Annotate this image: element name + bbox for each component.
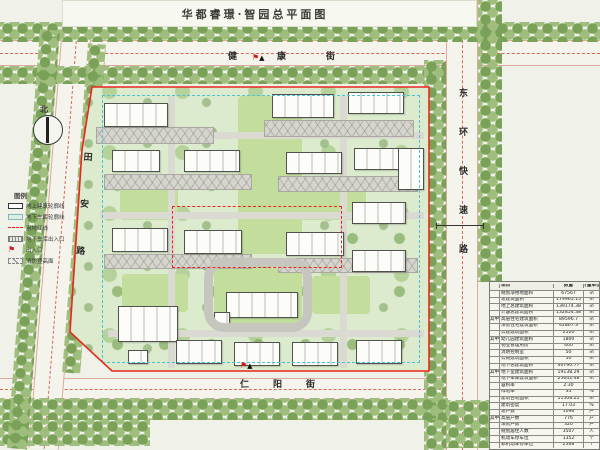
indicator-row: 其中地下室建筑面积19138.29㎡ — [490, 369, 599, 376]
street-label-bottom: 仁阳街 — [240, 377, 339, 390]
indicator-row: 物业管理用房400㎡ — [490, 343, 599, 350]
indicator-row: 洋房住宅建筑面积42867.3㎡ — [490, 323, 599, 330]
street-label-right: 东环快速路 — [456, 88, 469, 283]
street-label-top: 健康街 — [228, 49, 375, 62]
legend: 图例 地上建筑轮廓线地下车库轮廓线用地红线地下车库出入口⚑出入口消防登高面 — [8, 190, 90, 270]
indicator-row: 总建筑面积179965.15㎡ — [490, 297, 599, 304]
garage-outline-icon — [8, 214, 23, 220]
entrance-arrow-icon: ▲ — [247, 362, 252, 370]
header-cell: 项目 — [499, 284, 553, 289]
indicator-table-header: 项目数量计量单位 — [490, 282, 599, 290]
header-cell: 计量单位 — [583, 284, 599, 289]
header-cell: 数量 — [553, 284, 583, 289]
legend-item-label: 地下车库轮廓线 — [26, 213, 65, 221]
drawing-title: 华都睿璟·智园总平面图 — [150, 6, 360, 22]
indicator-row: 公建建筑面积2520㎡ — [490, 330, 599, 337]
indicator-row: 规划居住人数3507人 — [490, 428, 599, 435]
legend-title: 图例 — [14, 190, 27, 200]
indicator-row: 非机动车停车位2368个 — [490, 442, 599, 449]
legend-item-label: 消防登高面 — [26, 257, 54, 265]
legend-item-label: 地上建筑轮廓线 — [26, 202, 65, 210]
entrance-flag-icon: ⚑ — [8, 247, 23, 253]
legend-item: 地下车库出入口 — [8, 233, 90, 244]
indicator-value: 2368 — [553, 443, 583, 449]
legend-item: 地上建筑轮廓线 — [8, 200, 90, 211]
indicator-row: 消防控制室50㎡ — [490, 349, 599, 356]
indicator-row: 其中高层住宅建筑面积89596.7㎡ — [490, 316, 599, 323]
indicator-row: 规划净用地面积67567㎡ — [490, 290, 599, 297]
north-compass: 北 — [30, 104, 66, 152]
legend-items: 地上建筑轮廓线地下车库轮廓线用地红线地下车库出入口⚑出入口消防登高面 — [8, 200, 90, 266]
indicator-row: 计容总建筑面积132854.38㎡ — [490, 310, 599, 317]
legend-item-label: 出入口 — [26, 246, 43, 254]
indicator-row: 机动车停车位1352个 — [490, 435, 599, 442]
indicator-row: 地上总建筑面积139174.38㎡ — [490, 303, 599, 310]
indicator-row: 建筑密度17.03% — [490, 402, 599, 409]
fire-pad-icon — [8, 258, 23, 264]
indicator-row: 容积率2.30 — [490, 382, 599, 389]
legend-item: 地下车库轮廓线 — [8, 211, 90, 222]
legend-item-label: 地下车库出入口 — [26, 235, 65, 243]
indicator-row: 总户数1096户 — [490, 409, 599, 416]
red-boundary-icon — [8, 227, 23, 228]
north-label: 北 — [40, 104, 48, 115]
indicator-group — [490, 443, 499, 449]
indicator-row: 绿地率35% — [490, 389, 599, 396]
site-plan-sheet: ⚑▲⚑▲ 华都睿璟·智园总平面图 健康街 东环快速路 田安路 仁阳街 北 图例 … — [0, 0, 600, 450]
compass-needle-icon — [46, 117, 49, 143]
indicator-row: 洋房户数320户 — [490, 422, 599, 429]
indicator-row: 其中幼儿园建筑面积1800㎡ — [490, 336, 599, 343]
building-outline-icon — [8, 203, 23, 209]
entrance-marker: ⚑▲ — [240, 362, 253, 370]
indicator-row: 建筑占地面积11508.21㎡ — [490, 396, 599, 403]
indicator-table: 项目数量计量单位规划净用地面积67567㎡总建筑面积179965.15㎡地上总建… — [489, 281, 600, 450]
indicator-unit: 个 — [583, 443, 599, 449]
legend-item: 消防登高面 — [8, 255, 90, 266]
garage-ramp-icon — [8, 236, 23, 242]
legend-item-label: 用地红线 — [26, 224, 48, 232]
indicator-row: 其中高层户数776户 — [490, 415, 599, 422]
legend-item: ⚑出入口 — [8, 244, 90, 255]
indicator-row: 地下总建筑面积40790.77㎡ — [490, 363, 599, 370]
indicator-row: 地下车库建筑面积25642.48㎡ — [490, 376, 599, 383]
indicator-label: 非机动车停车位 — [499, 443, 553, 449]
indicator-row: 公厕建筑面积50㎡ — [490, 356, 599, 363]
legend-item: 用地红线 — [8, 222, 90, 233]
